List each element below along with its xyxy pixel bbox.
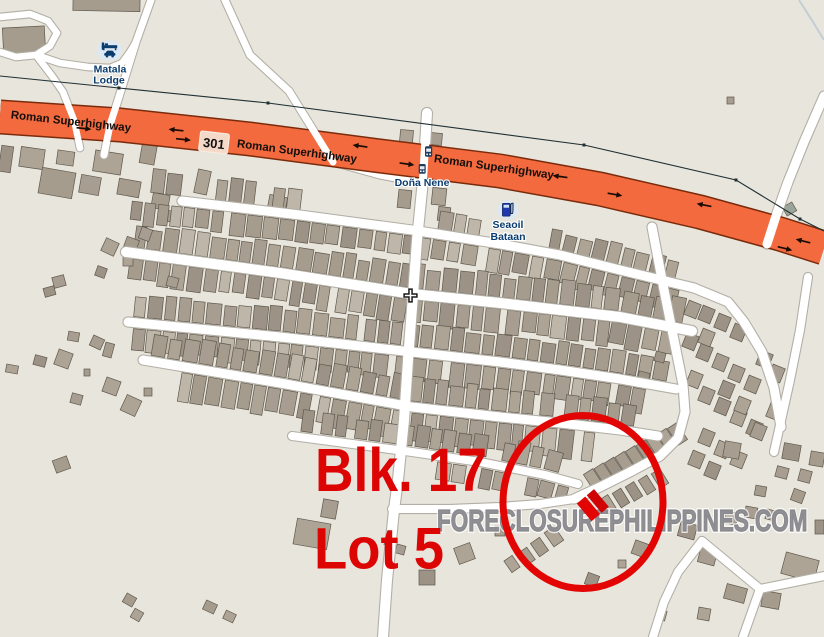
svg-text:FORECLOSUREPHILIPPINES.COM: FORECLOSUREPHILIPPINES.COM bbox=[437, 503, 807, 537]
svg-text:Seaoil: Seaoil bbox=[493, 219, 524, 231]
svg-text:Blk. 17: Blk. 17 bbox=[315, 436, 487, 504]
svg-text:Bataan: Bataan bbox=[490, 231, 525, 243]
svg-text:Lodge: Lodge bbox=[93, 75, 125, 87]
svg-text:Lot 5: Lot 5 bbox=[314, 517, 444, 582]
svg-text:Doña Nene: Doña Nene bbox=[395, 177, 450, 189]
svg-text:301: 301 bbox=[202, 135, 225, 152]
